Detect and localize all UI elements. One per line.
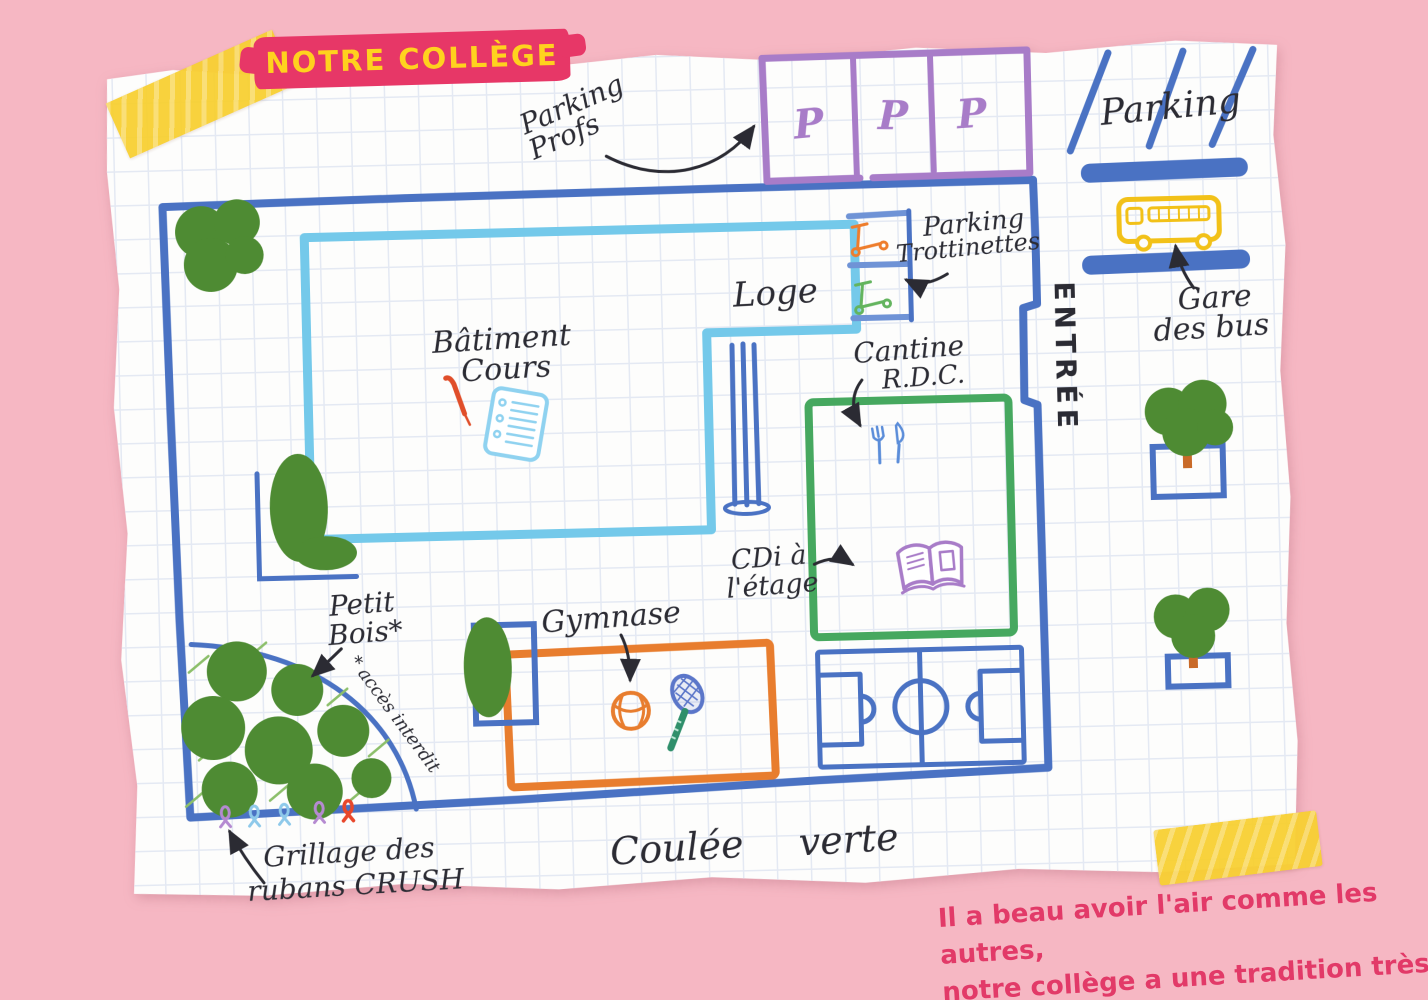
gare-label-2: des bus <box>1153 307 1271 349</box>
cantine-building <box>808 397 1014 637</box>
coulee-verte-word1: Coulée <box>609 822 745 874</box>
title-banner: NOTRE COLLÈGE <box>253 29 570 90</box>
school-map-drawing: Loge <box>102 34 1302 905</box>
soccer-field-icon <box>818 647 1025 767</box>
hedge-bush <box>269 452 358 571</box>
curb-bar <box>1082 249 1251 275</box>
notebook-icon <box>484 387 548 461</box>
parking-stall-p: P <box>877 92 910 139</box>
open-book-icon <box>897 541 965 593</box>
fork-knife-icon <box>872 423 908 465</box>
batiment-label-2: Cours <box>460 349 552 389</box>
page-title: NOTRE COLLÈGE <box>265 38 559 80</box>
loge-label: Loge <box>731 271 819 316</box>
coulee-verte-word2: verte <box>797 815 899 865</box>
basketball-icon <box>612 692 649 729</box>
tree-icon <box>1144 379 1235 497</box>
cantine-label-2: R.D.C. <box>880 359 966 395</box>
curb-bar <box>1081 157 1249 183</box>
entree-label: ENTRÉE <box>1048 281 1086 433</box>
parking-stall-p: P <box>954 89 991 138</box>
tree-icon <box>1153 587 1231 687</box>
trottinettes-label-2: Trottinettes <box>895 227 1041 268</box>
petit-bois-arrow <box>312 649 342 676</box>
graph-paper: Loge <box>102 34 1302 905</box>
stairs-passage <box>721 343 769 514</box>
gymnase-arrow <box>621 635 630 680</box>
cdi-label-2: l'étage <box>725 567 819 605</box>
gymnase-label: Gymnase <box>540 595 682 641</box>
cdi-arrow <box>814 559 852 566</box>
parking-profs-arrow <box>606 127 755 174</box>
petit-bois-label-2: Bois* <box>326 613 404 652</box>
banner-brush-stroke <box>556 33 587 59</box>
parking-stall-p: P <box>790 99 827 149</box>
gymnase-building <box>505 643 776 788</box>
tree-icon <box>463 616 537 724</box>
corner-bush <box>174 199 264 293</box>
badminton-racket-icon <box>666 670 710 748</box>
caption-text: Il a beau avoir l'air comme les autres, … <box>937 871 1428 1000</box>
banner-brush-stroke <box>239 46 266 75</box>
page: Loge <box>0 0 1428 1000</box>
bus-icon <box>1119 197 1220 250</box>
batiment-cours-building <box>304 224 861 539</box>
